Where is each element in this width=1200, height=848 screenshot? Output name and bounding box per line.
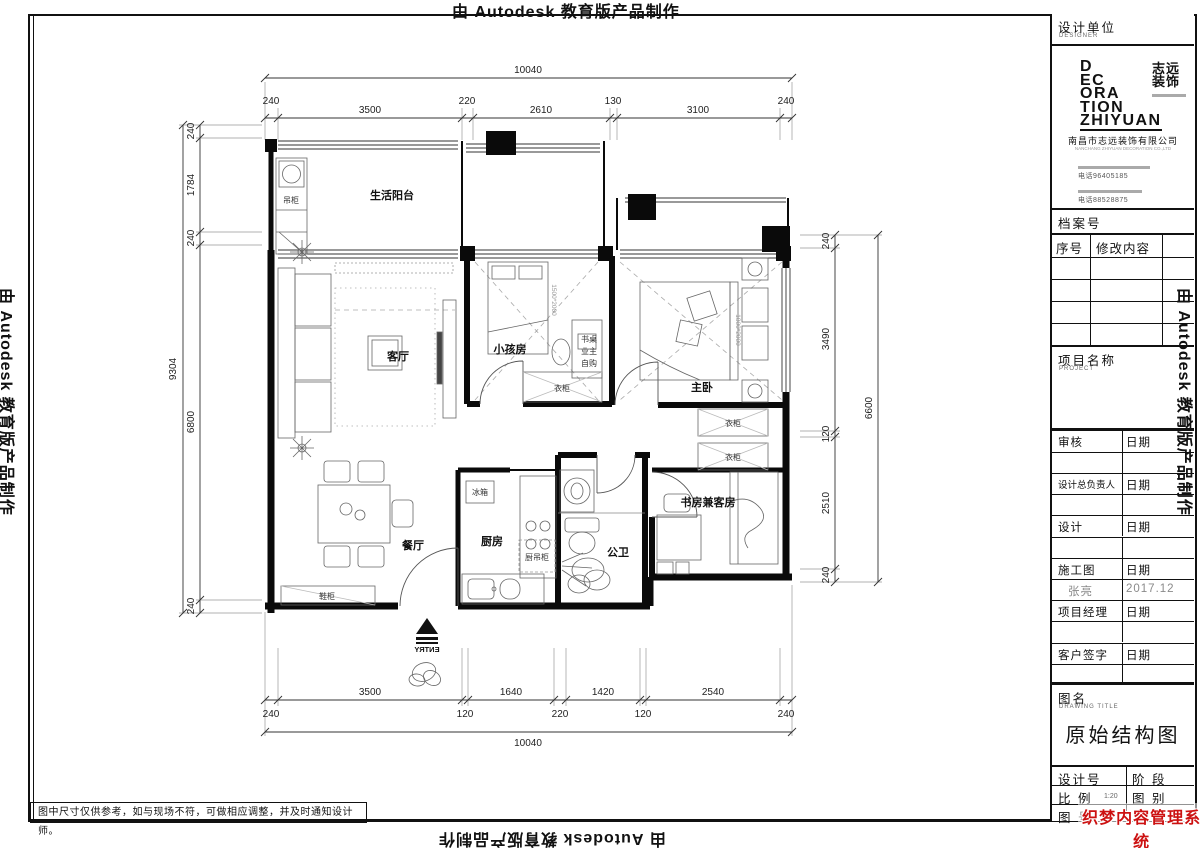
row-jingli: 项目经理日期 xyxy=(1052,600,1194,621)
row-sheji: 设计日期 xyxy=(1052,515,1194,536)
walls xyxy=(265,141,792,613)
dim-bot-240a: 240 xyxy=(263,709,280,720)
label-kitchen-cabinet: 厨吊柜 xyxy=(525,552,549,562)
room-bath: 公卫 xyxy=(607,546,629,559)
drawing-title: 原始结构图 xyxy=(1052,719,1194,748)
dim-bot-1640: 1640 xyxy=(500,687,523,698)
stamp-top: 由 Autodesk 教育版产品制作 xyxy=(452,0,680,22)
dim-top-2610: 2610 xyxy=(530,105,553,116)
room-living: 客厅 xyxy=(386,349,409,363)
dim-top-total: 10040 xyxy=(514,65,542,76)
tel-2: 电话88528875 xyxy=(1078,195,1128,205)
dim-left-240c: 240 xyxy=(186,597,197,614)
dim-top-3100: 3100 xyxy=(687,105,710,116)
dim-top-240a: 240 xyxy=(263,96,280,107)
room-kid: 小孩房 xyxy=(493,342,527,356)
revision-table: 序号 修改内容 xyxy=(1052,235,1194,345)
label-fridge: 冰箱 xyxy=(472,487,488,497)
room-study: 书房兼客房 xyxy=(681,495,736,509)
dim-top-3500: 3500 xyxy=(359,105,382,116)
dim-right-2510: 2510 xyxy=(821,491,832,514)
design-unit-en: DESIGNER xyxy=(1059,33,1098,39)
room-dining: 餐厅 xyxy=(401,538,424,552)
frame-left-outer xyxy=(28,14,30,821)
room-master: 主卧 xyxy=(691,380,713,394)
dim-right-240a: 240 xyxy=(821,232,832,249)
label-master-bed-size: 1800*2000 xyxy=(734,314,741,346)
row-scale: 比 例 1:20 图 别 xyxy=(1052,785,1194,803)
dim-bot-2540: 2540 xyxy=(702,687,725,698)
dim-bot-120b: 120 xyxy=(635,709,652,720)
drawing-title-en: DRAWING TITLE xyxy=(1059,704,1119,710)
dim-left-240a: 240 xyxy=(186,122,197,139)
row-zhangliang: 张亮2017.12 xyxy=(1052,579,1194,600)
label-wardrobe-kid: 衣柜 xyxy=(554,383,570,393)
dim-right-total: 6600 xyxy=(864,396,875,419)
title-block: 设计单位 DESIGNER D EC ORA TION ZHIYUAN 志远 装… xyxy=(1050,14,1194,821)
dimension-note: 图中尺寸仅供参考，如与现场不符，可做相应调整，并及时通知设计师。 xyxy=(30,802,367,823)
label-wardrobe-hall-1: 衣柜 xyxy=(725,418,741,428)
label-kid-bed-size: 1500*2000 xyxy=(550,284,557,316)
label-desk-note-3: 自购 xyxy=(581,358,597,368)
row-shenhe: 审核日期 xyxy=(1052,431,1194,452)
dim-left-240b: 240 xyxy=(186,229,197,246)
frame-left-inner xyxy=(33,14,34,821)
beam-dashed-lines xyxy=(335,262,782,400)
dim-left-total: 9304 xyxy=(168,357,179,380)
watermark-line1: 织梦内容管理系统 xyxy=(1081,804,1200,848)
logo-area: D EC ORA TION ZHIYUAN 志远 装饰 南昌市志远装饰有限公司 … xyxy=(1052,46,1194,208)
dim-top-220: 220 xyxy=(459,96,476,107)
dim-bot-1420: 1420 xyxy=(592,687,615,698)
room-balcony: 生活阳台 xyxy=(370,188,414,202)
logo-text: D EC ORA TION ZHIYUAN xyxy=(1080,60,1162,131)
dim-right-120: 120 xyxy=(821,425,832,442)
label-wardrobe-hall-2: 衣柜 xyxy=(725,452,741,462)
label-desk-note-2: 业主 xyxy=(581,346,597,356)
entry-marker: ENTRY xyxy=(414,618,439,654)
dim-bot-240b: 240 xyxy=(778,709,795,720)
row-empty xyxy=(1052,621,1194,642)
dim-bot-120a: 120 xyxy=(457,709,474,720)
dim-right-3490: 3490 xyxy=(821,327,832,350)
stamp-right: 由 Autodesk 教育版产品制作 xyxy=(1174,288,1198,516)
scale-value: 1:20 xyxy=(1104,793,1118,800)
row-qianzi: 客户签字日期 xyxy=(1052,643,1194,664)
row-design-no: 设计号 阶 段 xyxy=(1052,767,1194,785)
revision-header: 修改内容 xyxy=(1096,238,1150,257)
label-desk-note-1: 书桌 xyxy=(581,334,597,344)
row-empty xyxy=(1052,537,1194,558)
company-name-en: NANCHANG ZHIYUAN DECORATION CO.,LTD xyxy=(1052,146,1194,151)
row-shigongtu: 施工图日期 xyxy=(1052,558,1194,579)
project-en: PROJECT xyxy=(1059,366,1094,372)
dim-top-240b: 240 xyxy=(778,96,795,107)
floor-plan: 10040 240 3500 220 2610 130 3100 240 100… xyxy=(150,55,910,765)
dim-bot-3500: 3500 xyxy=(359,687,382,698)
dim-top-130: 130 xyxy=(605,96,622,107)
label-hang-cabinet: 吊柜 xyxy=(283,195,299,205)
room-kitchen: 厨房 xyxy=(481,534,503,548)
dim-bot-220: 220 xyxy=(552,709,569,720)
row-zongfuzeren: 设计总负责人日期 xyxy=(1052,473,1194,494)
label-shoe-cabinet: 鞋柜 xyxy=(319,591,335,601)
row-empty xyxy=(1052,494,1194,515)
dedecms-watermark: 织梦内容管理系统 DEDECMS.COM xyxy=(1078,803,1200,848)
stamp-left: 由 Autodesk 教育版产品制作 xyxy=(0,288,20,516)
logo-cn: 志远 装饰 xyxy=(1152,62,1180,88)
dim-bottom-total: 10040 xyxy=(514,738,542,749)
dim-left-6800: 6800 xyxy=(186,410,197,433)
row-empty xyxy=(1052,452,1194,473)
stamp-bottom: 由 Autodesk 教育版产品制作 xyxy=(382,829,722,848)
dim-right-240b: 240 xyxy=(821,566,832,583)
dim-left-1784: 1784 xyxy=(186,173,197,196)
columns xyxy=(265,131,791,261)
seq-header: 序号 xyxy=(1056,238,1083,257)
entry-label: ENTRY xyxy=(414,645,439,654)
archive-no-label: 档案号 xyxy=(1058,213,1102,232)
tel-1: 电话96405185 xyxy=(1078,171,1128,181)
cad-sheet: 由 Autodesk 教育版产品制作 由 Autodesk 教育版产品制作 由 … xyxy=(0,0,1200,848)
